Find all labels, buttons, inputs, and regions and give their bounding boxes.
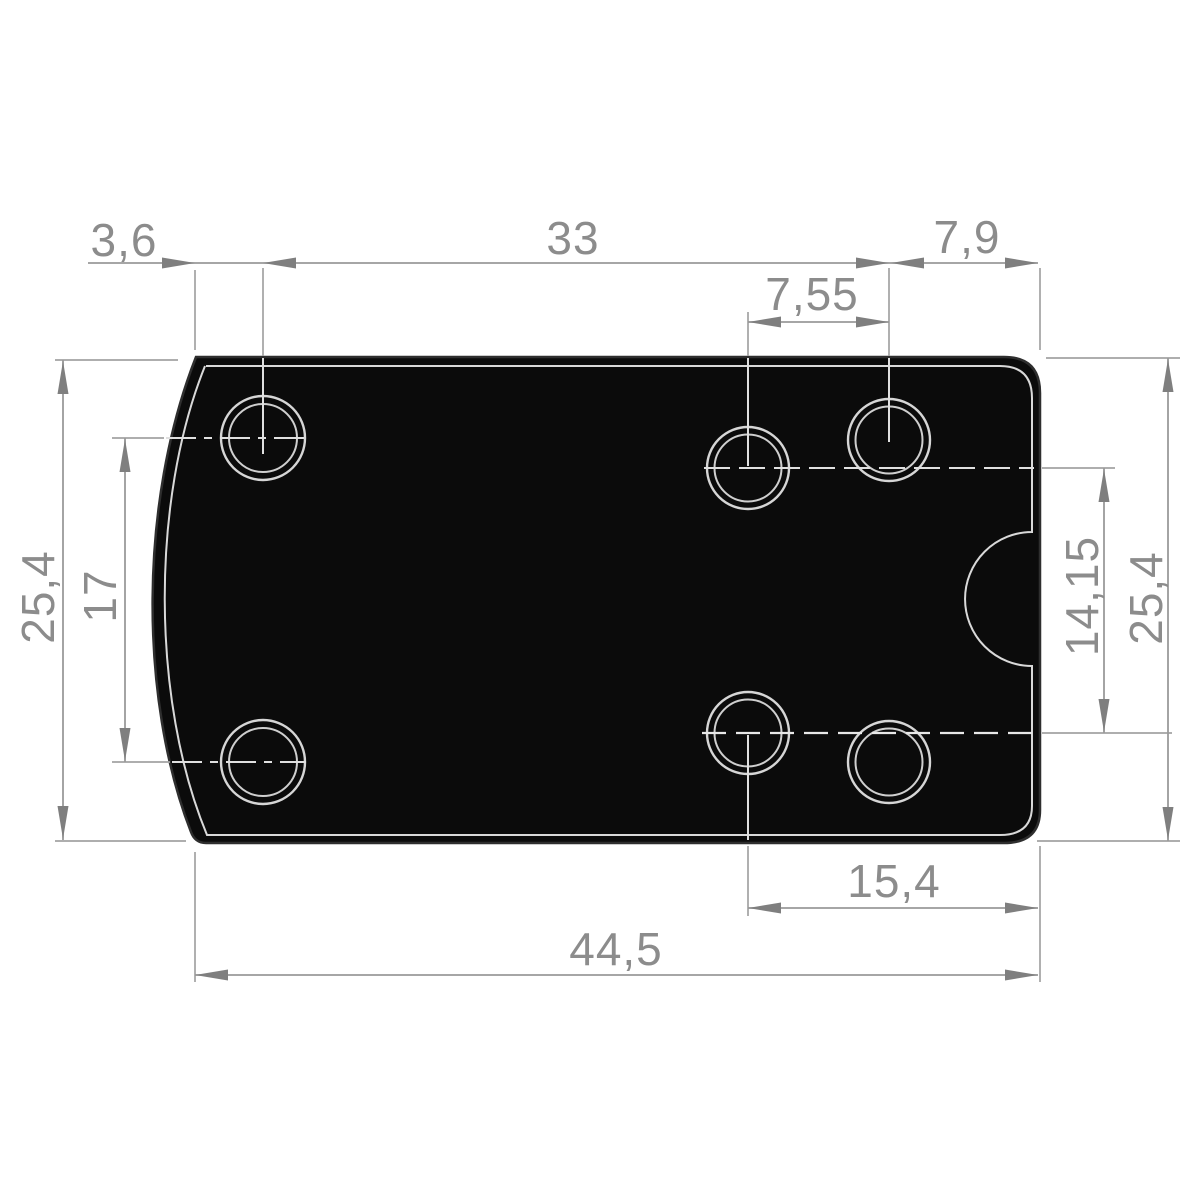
label-25-4-left: 25,4 bbox=[12, 550, 64, 644]
arrow-17-top bbox=[120, 439, 131, 472]
label-33: 33 bbox=[546, 212, 599, 264]
arrow-25-4-right-bottom bbox=[1163, 807, 1174, 840]
arrow-17-bottom bbox=[120, 728, 131, 761]
label-25-4-right: 25,4 bbox=[1120, 551, 1172, 645]
arrow-14-15-top bbox=[1099, 469, 1110, 502]
label-44-5: 44,5 bbox=[569, 923, 663, 975]
label-7-55: 7,55 bbox=[765, 268, 859, 320]
arrow-14-15-bottom bbox=[1099, 699, 1110, 732]
arrow-33-right bbox=[856, 258, 889, 269]
plate-outline bbox=[153, 357, 1040, 843]
label-3-6: 3,6 bbox=[91, 214, 158, 266]
arrow-3-6-left bbox=[162, 258, 195, 269]
label-15-4: 15,4 bbox=[847, 855, 941, 907]
arrow-7-55-right bbox=[856, 317, 889, 328]
label-17: 17 bbox=[74, 569, 126, 622]
arrow-33-left bbox=[263, 258, 296, 269]
arrow-7-9-left bbox=[891, 258, 924, 269]
dimension-drawing-canvas: 3,6 33 7,9 7,55 25,4 17 14,15 25,4 15,4 … bbox=[0, 0, 1200, 1200]
plate bbox=[153, 357, 1040, 843]
arrow-44-5-left bbox=[195, 970, 228, 981]
arrow-15-4-left bbox=[748, 903, 781, 914]
arrow-25-4-left-bottom bbox=[58, 806, 69, 839]
arrow-7-9-right bbox=[1005, 258, 1038, 269]
arrow-15-4-right bbox=[1005, 903, 1038, 914]
label-14-15: 14,15 bbox=[1056, 536, 1108, 656]
arrow-44-5-right bbox=[1005, 970, 1038, 981]
technical-drawing-page: 3,6 33 7,9 7,55 25,4 17 14,15 25,4 15,4 … bbox=[0, 0, 1200, 1200]
arrow-25-4-left-top bbox=[58, 361, 69, 394]
label-7-9: 7,9 bbox=[934, 211, 1001, 263]
arrow-25-4-right-top bbox=[1163, 359, 1174, 392]
